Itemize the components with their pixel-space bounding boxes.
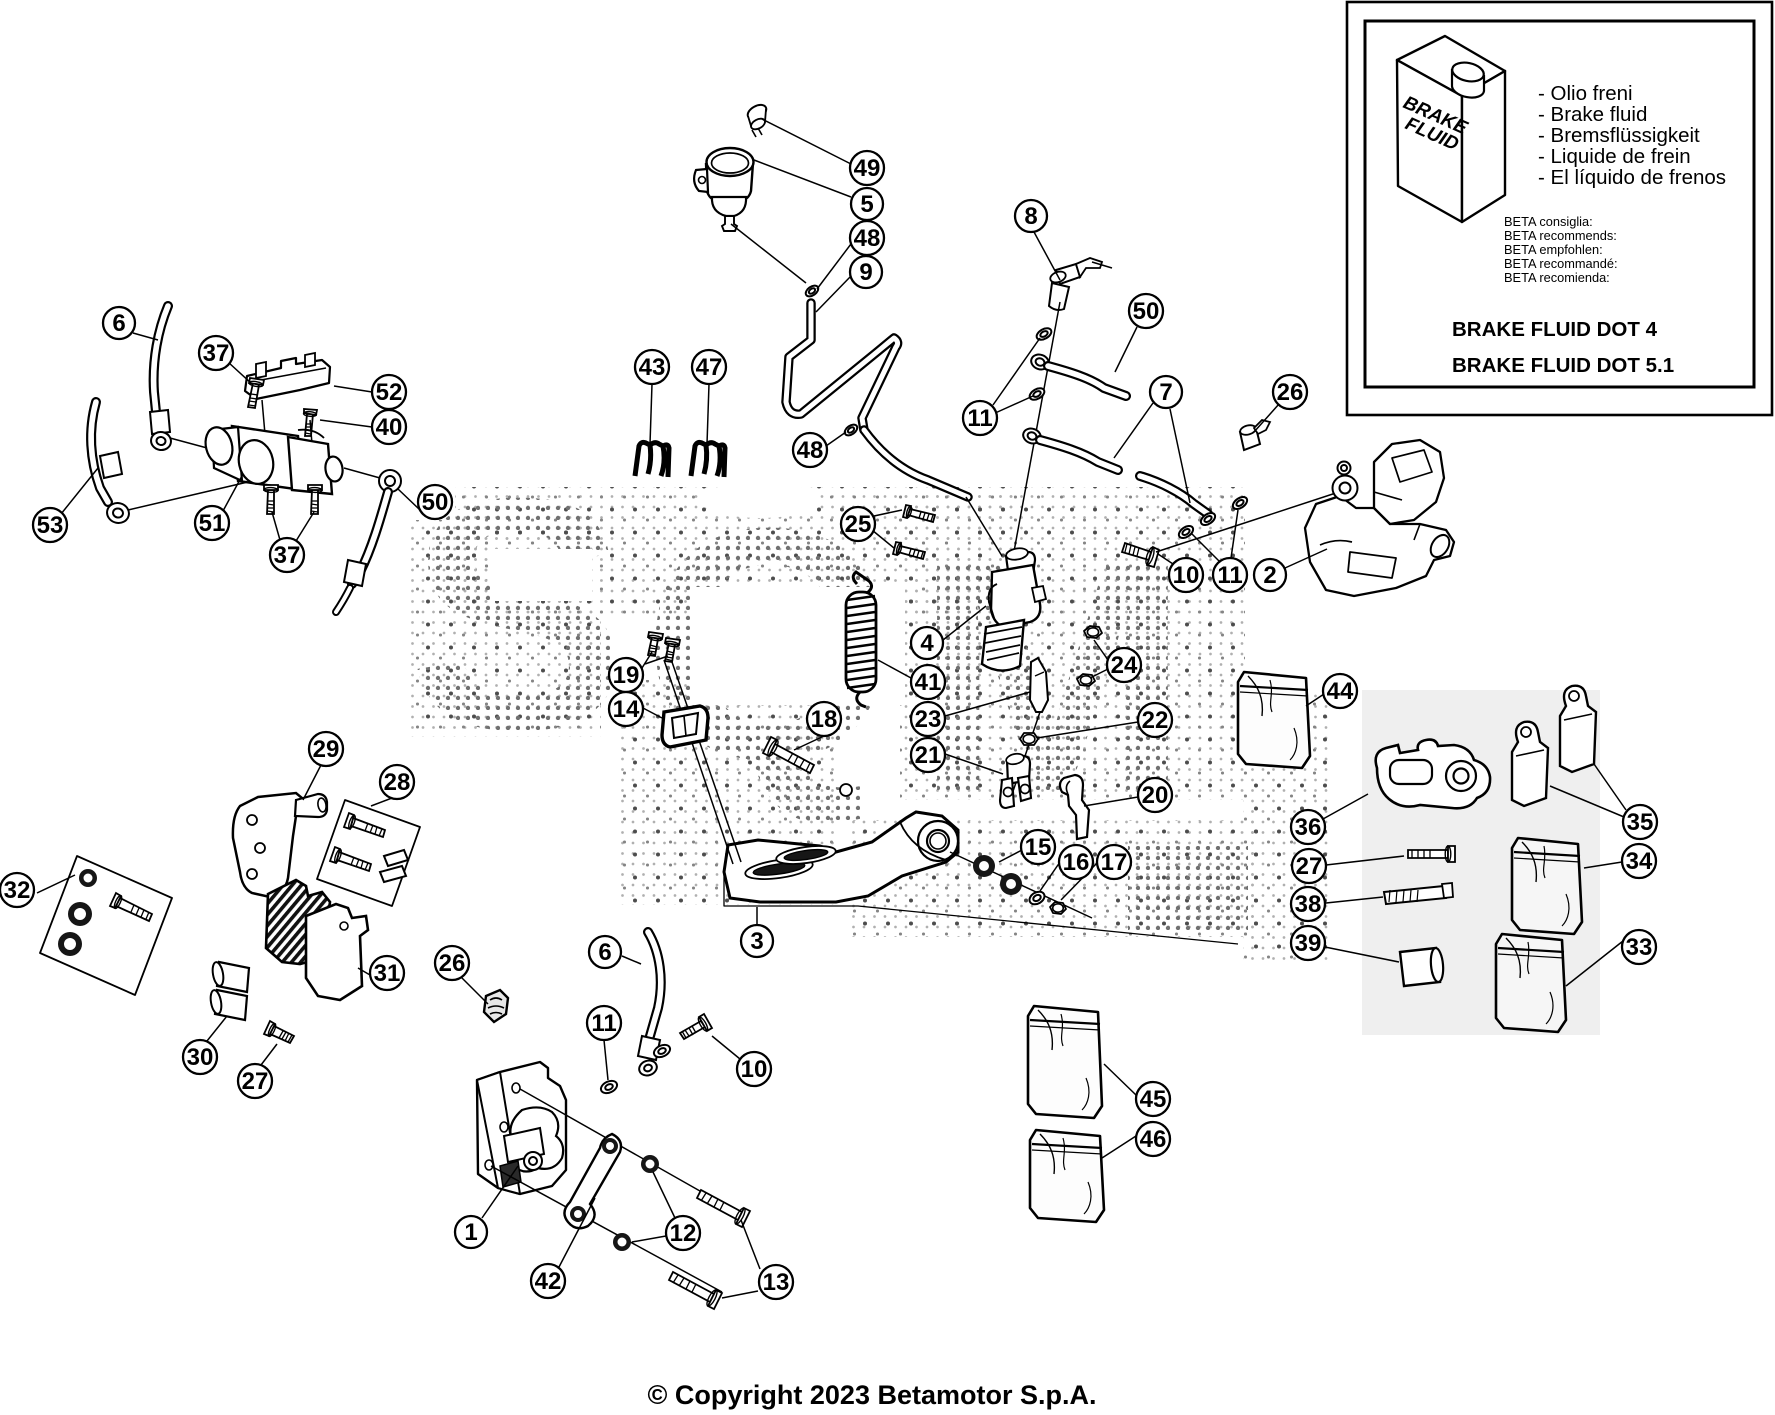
svg-text:43: 43 <box>639 354 666 381</box>
svg-text:37: 37 <box>274 542 301 569</box>
svg-text:BETA recommends:: BETA recommends: <box>1504 228 1617 243</box>
svg-text:39: 39 <box>1295 930 1322 957</box>
svg-text:23: 23 <box>915 706 942 733</box>
svg-text:9: 9 <box>859 259 872 286</box>
svg-text:44: 44 <box>1327 678 1354 705</box>
svg-text:22: 22 <box>1142 707 1169 734</box>
svg-text:38: 38 <box>1295 891 1322 918</box>
svg-text:5: 5 <box>860 191 873 218</box>
svg-text:50: 50 <box>1133 298 1160 325</box>
svg-text:53: 53 <box>37 512 64 539</box>
svg-text:50: 50 <box>422 489 449 516</box>
svg-text:26: 26 <box>1277 379 1304 406</box>
svg-text:S: S <box>408 429 628 798</box>
svg-text:32: 32 <box>4 877 31 904</box>
svg-text:8: 8 <box>1024 203 1037 230</box>
svg-text:20: 20 <box>1142 782 1169 809</box>
svg-text:51: 51 <box>199 510 226 537</box>
svg-text:2: 2 <box>1263 562 1276 589</box>
svg-text:BETA recomienda:: BETA recomienda: <box>1504 270 1610 285</box>
svg-text:19: 19 <box>613 662 640 689</box>
svg-text:34: 34 <box>1626 848 1653 875</box>
svg-text:52: 52 <box>376 379 403 406</box>
svg-text:© Copyright 2023 Betamotor S.p: © Copyright 2023 Betamotor S.p.A. <box>648 1380 1097 1410</box>
svg-text:- Olio freni: - Olio freni <box>1538 82 1633 105</box>
svg-text:3: 3 <box>750 928 763 955</box>
svg-text:- El líquido de frenos: - El líquido de frenos <box>1538 166 1726 189</box>
svg-text:28: 28 <box>384 769 411 796</box>
svg-text:36: 36 <box>1295 814 1322 841</box>
svg-text:17: 17 <box>1101 849 1128 876</box>
svg-text:29: 29 <box>313 736 340 763</box>
svg-text:33: 33 <box>1626 934 1653 961</box>
svg-text:46: 46 <box>1140 1126 1167 1153</box>
svg-text:10: 10 <box>1173 562 1200 589</box>
svg-text:42: 42 <box>535 1268 562 1295</box>
svg-text:13: 13 <box>763 1269 790 1296</box>
svg-text:18: 18 <box>811 706 838 733</box>
svg-text:11: 11 <box>967 405 992 432</box>
svg-text:14: 14 <box>613 696 640 723</box>
svg-text:37: 37 <box>203 340 230 367</box>
svg-text:12: 12 <box>670 1220 697 1247</box>
svg-text:1: 1 <box>464 1219 477 1246</box>
svg-text:BETA empfohlen:: BETA empfohlen: <box>1504 242 1603 257</box>
svg-text:6: 6 <box>598 939 611 966</box>
svg-text:21: 21 <box>915 742 942 769</box>
svg-text:26: 26 <box>439 950 466 977</box>
svg-text:- Brake fluid: - Brake fluid <box>1538 103 1647 126</box>
svg-text:27: 27 <box>1296 853 1323 880</box>
svg-text:27: 27 <box>242 1068 269 1095</box>
svg-text:24: 24 <box>1111 652 1138 679</box>
svg-text:45: 45 <box>1140 1086 1167 1113</box>
svg-text:11: 11 <box>1217 562 1242 589</box>
svg-text:31: 31 <box>374 960 401 987</box>
svg-text:47: 47 <box>696 354 723 381</box>
svg-text:41: 41 <box>915 669 942 696</box>
svg-text:- Bremsflüssigkeit: - Bremsflüssigkeit <box>1538 124 1700 147</box>
svg-text:30: 30 <box>187 1044 214 1071</box>
svg-text:BRAKE FLUID DOT 4: BRAKE FLUID DOT 4 <box>1452 318 1658 341</box>
svg-text:6: 6 <box>112 310 125 337</box>
svg-text:49: 49 <box>854 155 881 182</box>
svg-text:40: 40 <box>376 414 403 441</box>
svg-text:48: 48 <box>797 437 824 464</box>
svg-text:35: 35 <box>1627 809 1654 836</box>
svg-text:15: 15 <box>1025 834 1052 861</box>
svg-text:7: 7 <box>1159 379 1172 406</box>
svg-text:11: 11 <box>591 1010 616 1037</box>
svg-text:48: 48 <box>854 225 881 252</box>
svg-text:BETA recommandé:: BETA recommandé: <box>1504 256 1618 271</box>
svg-text:10: 10 <box>741 1056 768 1083</box>
svg-text:BETA consiglia:: BETA consiglia: <box>1504 214 1593 229</box>
svg-text:25: 25 <box>845 511 872 538</box>
svg-text:16: 16 <box>1063 849 1090 876</box>
svg-text:4: 4 <box>920 630 934 657</box>
svg-text:BRAKE FLUID DOT 5.1: BRAKE FLUID DOT 5.1 <box>1452 354 1674 377</box>
svg-text:- Liquide de frein: - Liquide de frein <box>1538 145 1691 168</box>
